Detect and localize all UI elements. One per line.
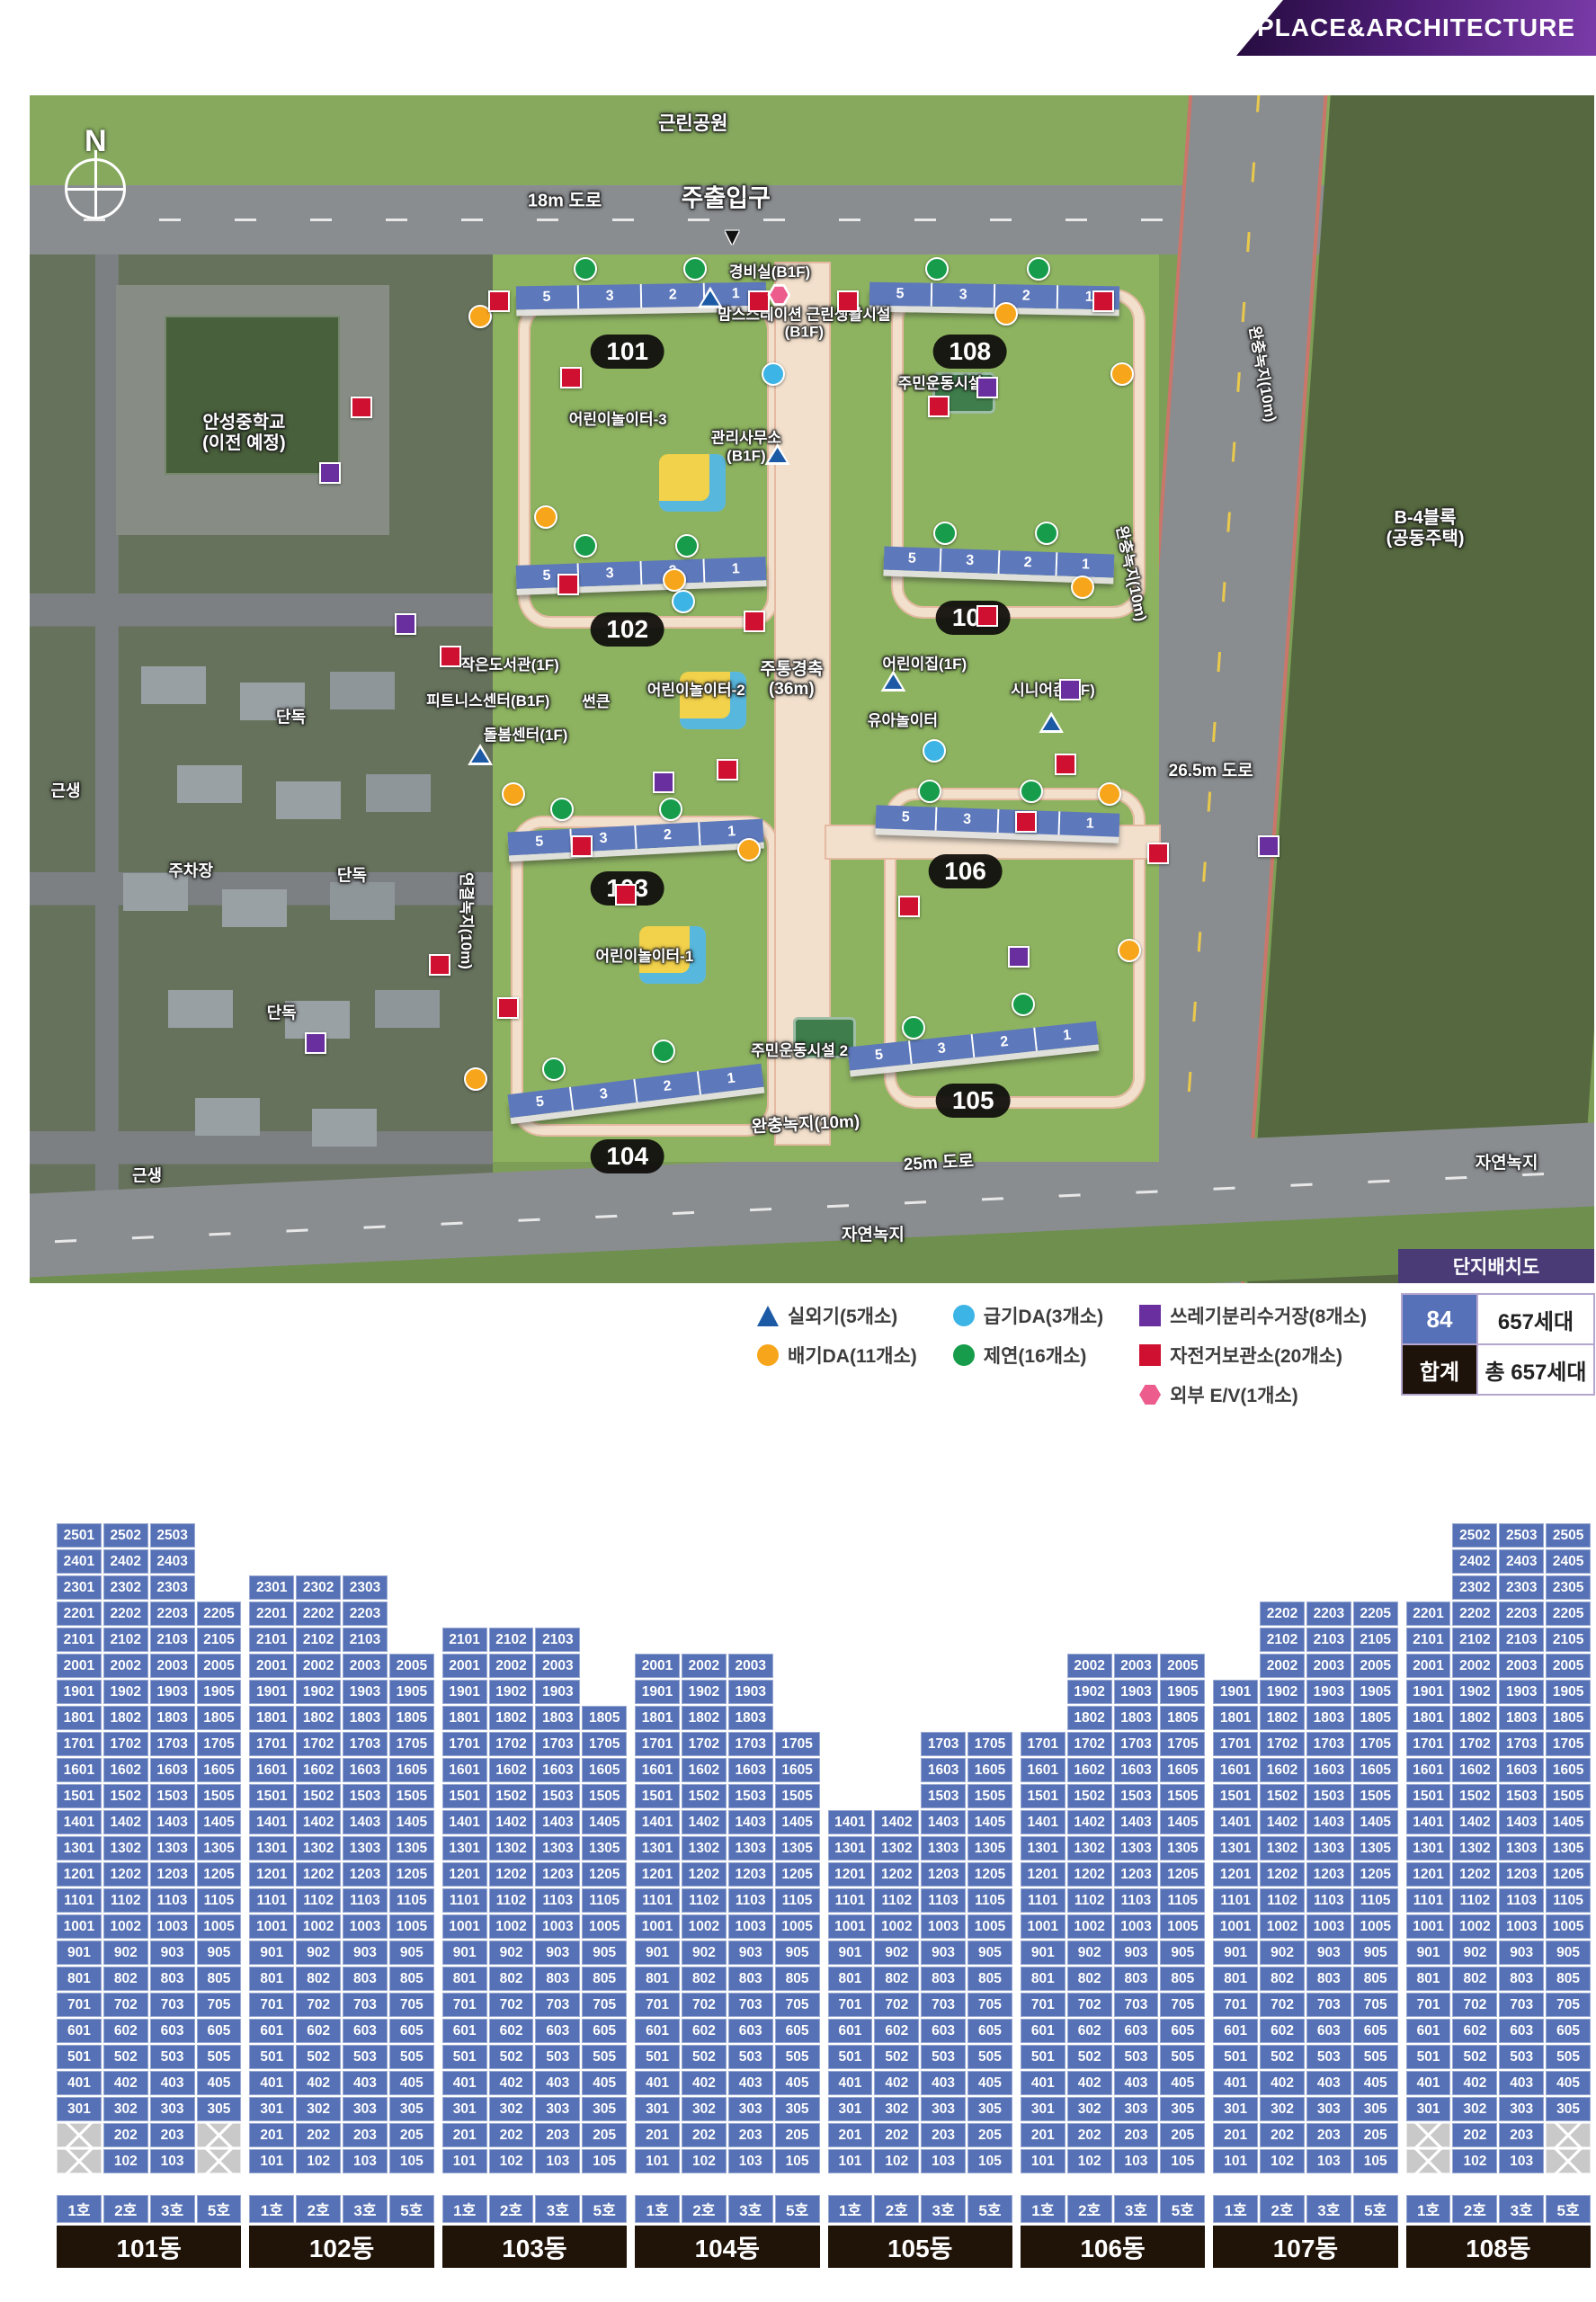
unit-column-header: 1호2호3호5호	[442, 2195, 627, 2223]
unit-cell: 1302	[874, 1836, 919, 1860]
unit-cell: 305	[1160, 2097, 1205, 2121]
unit-cell: 1905	[1546, 1680, 1591, 1704]
unit-cell: 1801	[1213, 1706, 1258, 1730]
unit-cell: 701	[1406, 1993, 1451, 2017]
unit-cell: 701	[1213, 1993, 1258, 2017]
unit-cell: 802	[874, 1967, 919, 1991]
unit-column-header: 1호2호3호5호	[1021, 2195, 1205, 2223]
unit-cell: 103	[535, 2149, 580, 2173]
unit-cell: 305	[582, 2097, 627, 2121]
blocked-cell	[1406, 2149, 1451, 2173]
unit-cell: 2203	[150, 1602, 195, 1626]
compass-dial	[65, 158, 126, 219]
unit-cell: 605	[582, 2019, 627, 2043]
unit-cell: 603	[1306, 2019, 1351, 2043]
unit-cell: 601	[57, 2019, 102, 2043]
bicycle-storage-marker	[557, 574, 579, 595]
unit-cell: 502	[874, 2045, 919, 2069]
unit-cell: 505	[1546, 2045, 1591, 2069]
map-building-101-unit-5: 5	[516, 285, 580, 309]
unit-cell: 703	[1114, 1993, 1159, 2017]
map-building-108-unit-3: 3	[932, 283, 996, 308]
unit-cell: 1301	[828, 1836, 873, 1860]
legend-item-label: 자전거보관소(20개소)	[1170, 1342, 1342, 1369]
unit-cell: 2003	[150, 1654, 195, 1678]
unit-cell: 102	[489, 2149, 534, 2173]
unit-cell: 403	[1499, 2071, 1544, 2095]
unit-cell: 105	[582, 2149, 627, 2173]
unit-cell: 301	[828, 2097, 873, 2121]
unit-cell: 1205	[1353, 1862, 1398, 1887]
unit-cell: 2101	[57, 1628, 102, 1652]
unit-cell: 1001	[1213, 1914, 1258, 1939]
unit-cell: 2203	[1306, 1602, 1351, 1626]
unit-cell: 2103	[343, 1628, 388, 1652]
map-building-107-unit-2: 2	[999, 550, 1057, 575]
unit-cell: 1405	[197, 1810, 242, 1834]
unit-cell: 1401	[249, 1810, 294, 1834]
unit-cell: 1805	[1353, 1706, 1398, 1730]
main-entry-arrow-icon: ▼	[720, 223, 744, 251]
unit-cell: 902	[103, 1941, 148, 1965]
total-label-cell: 합계	[1402, 1344, 1477, 1395]
unit-cell: 1303	[535, 1836, 580, 1860]
unit-cell: 405	[197, 2071, 242, 2095]
unit-cell: 805	[1160, 1967, 1205, 1991]
unit-cell: 2201	[57, 1602, 102, 1626]
unit-cell: 1903	[728, 1680, 773, 1704]
unit-cell: 601	[249, 2019, 294, 2043]
unit-cell: 2502	[103, 1523, 148, 1548]
unit-cell: 2001	[442, 1654, 487, 1678]
unit-cell: 501	[249, 2045, 294, 2069]
unit-cell: 805	[197, 1967, 242, 1991]
smoke-control-marker	[918, 780, 941, 803]
bicycle-storage-marker	[429, 954, 450, 976]
unit-cell: 1201	[1406, 1862, 1451, 1887]
compass: N	[64, 126, 127, 219]
map-label: 어린이집(1F)	[882, 656, 967, 674]
unit-cell: 503	[150, 2045, 195, 2069]
building-name-bar: 105동	[828, 2226, 1012, 2268]
unit-cell: 401	[57, 2071, 102, 2095]
unit-cell: 303	[1499, 2097, 1544, 2121]
unit-cell: 2202	[1452, 1602, 1497, 1626]
unit-cell: 2002	[1452, 1654, 1497, 1678]
unit-cell: 1102	[682, 1888, 727, 1913]
unit-cell: 1903	[343, 1680, 388, 1704]
grid-building-108동: 3014015016017018019011001110112011301140…	[1406, 1523, 1591, 2268]
unit-column-header-cell: 3호	[1499, 2195, 1544, 2223]
map-label: 연결녹지(10m)	[458, 872, 476, 969]
unit-cell: 401	[635, 2071, 680, 2095]
unit-cell: 405	[967, 2071, 1012, 2095]
unit-cell: 1901	[57, 1680, 102, 1704]
unit-cell: 1603	[1306, 1758, 1351, 1782]
unit-cell: 1401	[442, 1810, 487, 1834]
unit-cell: 1302	[296, 1836, 341, 1860]
unit-cell: 1205	[967, 1862, 1012, 1887]
unit-cell: 903	[921, 1941, 966, 1965]
map-label: 경비실(B1F)	[729, 263, 810, 281]
unit-cell: 1601	[635, 1758, 680, 1782]
unit-cell: 805	[1353, 1967, 1398, 1991]
unit-cell: 2103	[150, 1628, 195, 1652]
unit-column-header: 1호2호3호5호	[1406, 2195, 1591, 2223]
bicycle-storage-marker	[837, 290, 859, 312]
unit-cell: 201	[635, 2123, 680, 2147]
unit-cell: 202	[296, 2123, 341, 2147]
map-label: 썬큰	[582, 693, 610, 711]
unit-cell: 301	[1406, 2097, 1451, 2121]
unit-cell: 2002	[103, 1654, 148, 1678]
unit-cell: 1803	[1306, 1706, 1351, 1730]
map-label: 근생	[50, 782, 80, 801]
unit-cell: 1405	[1353, 1810, 1398, 1834]
unit-cell: 1202	[103, 1862, 148, 1887]
map-building-103-unit-2: 2	[637, 823, 702, 850]
unit-number-grid: 3014015016017018019011001110112011301140…	[57, 1523, 1591, 2268]
unit-cell: 901	[828, 1941, 873, 1965]
unit-cell: 1703	[1306, 1732, 1351, 1756]
unit-cell: 1401	[1406, 1810, 1451, 1834]
unit-cell: 1003	[150, 1914, 195, 1939]
unit-cell: 1403	[1114, 1810, 1159, 1834]
unit-cell: 1001	[1021, 1914, 1065, 1939]
unit-cell: 1101	[57, 1888, 102, 1913]
waste-station-marker	[305, 1032, 326, 1054]
unit-cell: 1602	[682, 1758, 727, 1782]
unit-cell: 201	[1213, 2123, 1258, 2147]
unit-cell: 1003	[535, 1914, 580, 1939]
unit-cell: 2102	[1452, 1628, 1497, 1652]
unit-column-header-cell: 3호	[921, 2195, 966, 2223]
unit-cell: 502	[103, 2045, 148, 2069]
exhaust-da-marker	[502, 782, 525, 806]
unit-cell: 1505	[389, 1784, 434, 1808]
unit-cell: 2102	[103, 1628, 148, 1652]
unit-cell: 705	[389, 1993, 434, 2017]
unit-cell: 1402	[1260, 1810, 1305, 1834]
unit-cell: 505	[1353, 2045, 1398, 2069]
unit-cell: 1301	[442, 1836, 487, 1860]
unit-cell: 1002	[682, 1914, 727, 1939]
unit-cell: 2003	[728, 1654, 773, 1678]
unit-cell: 205	[389, 2123, 434, 2147]
unit-cell: 1705	[582, 1732, 627, 1756]
unit-cell: 401	[249, 2071, 294, 2095]
unit-cell: 402	[103, 2071, 148, 2095]
unit-cell: 603	[150, 2019, 195, 2043]
unit-cell: 802	[489, 1967, 534, 1991]
unit-cell: 1202	[682, 1862, 727, 1887]
unit-cell: 1105	[1160, 1888, 1205, 1913]
unit-cell: 902	[1452, 1941, 1497, 1965]
unit-cell: 403	[150, 2071, 195, 2095]
unit-cell: 1405	[967, 1810, 1012, 1834]
unit-cell: 1503	[343, 1784, 388, 1808]
unit-cell: 1605	[197, 1758, 242, 1782]
header-banner: PLACE&ARCHITECTURE	[1236, 0, 1596, 56]
unit-cell: 1203	[921, 1862, 966, 1887]
exhaust-da-marker	[534, 505, 557, 529]
unit-column-header-cell: 3호	[535, 2195, 580, 2223]
unit-cell: 503	[1114, 2045, 1159, 2069]
map-building-107-unit-3: 3	[941, 549, 1000, 574]
unit-cell: 2103	[1306, 1628, 1351, 1652]
unit-cell: 1903	[1114, 1680, 1159, 1704]
unit-cell: 701	[442, 1993, 487, 2017]
unit-cell: 703	[921, 1993, 966, 2017]
map-label: 유아놀이터	[868, 712, 938, 730]
unit-cell: 1102	[1260, 1888, 1305, 1913]
map-label: 근린공원	[658, 113, 727, 135]
square-legend-icon	[1139, 1305, 1161, 1326]
unit-cell: 1605	[775, 1758, 820, 1782]
unit-cell: 901	[442, 1941, 487, 1965]
unit-cell: 1505	[967, 1784, 1012, 1808]
unit-stack: 1012013014015016017018019011001110112011…	[1021, 1523, 1205, 2173]
unit-cell: 505	[389, 2045, 434, 2069]
unit-cell: 2301	[249, 1575, 294, 1600]
map-building-107-unit-5: 5	[884, 546, 942, 571]
unit-cell: 1103	[1114, 1888, 1159, 1913]
unit-cell: 2005	[1546, 1654, 1591, 1678]
unit-type-count: 657세대	[1477, 1294, 1594, 1344]
map-label: 어린이놀이터-2	[647, 682, 745, 700]
unit-cell: 402	[1067, 2071, 1112, 2095]
unit-cell: 605	[1353, 2019, 1398, 2043]
unit-cell: 2302	[296, 1575, 341, 1600]
unit-cell: 1505	[582, 1784, 627, 1808]
unit-cell: 1505	[775, 1784, 820, 1808]
unit-cell: 1703	[535, 1732, 580, 1756]
unit-cell: 1005	[1160, 1914, 1205, 1939]
unit-cell: 1202	[874, 1862, 919, 1887]
unit-cell: 1802	[682, 1706, 727, 1730]
unit-cell: 2402	[1452, 1549, 1497, 1574]
unit-cell: 602	[103, 2019, 148, 2043]
unit-cell: 402	[489, 2071, 534, 2095]
unit-column-header-cell: 3호	[343, 2195, 388, 2223]
unit-cell: 1202	[1067, 1862, 1112, 1887]
bicycle-storage-marker	[748, 290, 770, 312]
unit-cell: 203	[150, 2123, 195, 2147]
unit-cell: 1805	[197, 1706, 242, 1730]
legend-item: 쓰레기분리수거장(8개소)	[1139, 1302, 1367, 1329]
unit-cell: 2102	[1260, 1628, 1305, 1652]
unit-cell: 1103	[1306, 1888, 1351, 1913]
unit-cell: 1102	[296, 1888, 341, 1913]
unit-cell: 401	[1406, 2071, 1451, 2095]
unit-cell: 103	[921, 2149, 966, 2173]
unit-cell: 2503	[1499, 1523, 1544, 1548]
waste-station-marker	[395, 613, 416, 635]
unit-cell: 2102	[296, 1628, 341, 1652]
map-building-label-107: 107	[936, 601, 1011, 635]
blocked-cell	[1546, 2149, 1591, 2173]
unit-cell: 2202	[1260, 1602, 1305, 1626]
map-building-108: 5321	[869, 282, 1120, 310]
bicycle-storage-marker	[440, 646, 461, 667]
map-label: 근생	[132, 1167, 162, 1186]
unit-cell: 1503	[921, 1784, 966, 1808]
unit-cell: 103	[150, 2149, 195, 2173]
unit-cell: 1402	[296, 1810, 341, 1834]
unit-cell: 501	[828, 2045, 873, 2069]
unit-cell: 1702	[103, 1732, 148, 1756]
unit-cell: 1203	[535, 1862, 580, 1887]
unit-cell: 1605	[389, 1758, 434, 1782]
unit-cell: 102	[682, 2149, 727, 2173]
unit-cell: 1605	[1160, 1758, 1205, 1782]
unit-cell: 105	[389, 2149, 434, 2173]
unit-cell: 103	[728, 2149, 773, 2173]
unit-stack: 1012013014015016017018019011001110112011…	[1213, 1523, 1397, 2173]
unit-cell: 2103	[535, 1628, 580, 1652]
unit-column-header-cell: 2호	[1452, 2195, 1497, 2223]
unit-cell: 1802	[1067, 1706, 1112, 1730]
unit-cell: 1602	[1452, 1758, 1497, 1782]
unit-cell: 2301	[57, 1575, 102, 1600]
unit-cell: 803	[343, 1967, 388, 1991]
unit-cell: 905	[197, 1941, 242, 1965]
unit-cell: 1502	[103, 1784, 148, 1808]
unit-cell: 801	[1406, 1967, 1451, 1991]
map-building-label-105: 105	[936, 1084, 1011, 1118]
unit-cell: 1303	[921, 1836, 966, 1860]
banner-title: PLACE&ARCHITECTURE	[1257, 13, 1575, 42]
unit-cell: 1502	[1067, 1784, 1112, 1808]
legend: 실외기(5개소)배기DA(11개소)급기DA(3개소)제연(16개소)쓰레기분리…	[757, 1302, 1367, 1408]
unit-cell: 705	[582, 1993, 627, 2017]
unit-cell: 1303	[1306, 1836, 1351, 1860]
legend-column: 쓰레기분리수거장(8개소)자전거보관소(20개소)외부 E/V(1개소)	[1139, 1302, 1367, 1408]
unit-cell: 902	[874, 1941, 919, 1965]
unit-cell: 802	[1067, 1967, 1112, 1991]
map-label: 작은도서관(1F)	[460, 656, 558, 674]
unit-cell: 602	[682, 2019, 727, 2043]
unit-cell: 1501	[1406, 1784, 1451, 1808]
unit-cell: 301	[635, 2097, 680, 2121]
unit-cell: 1701	[635, 1732, 680, 1756]
unit-cell: 1105	[1353, 1888, 1398, 1913]
map-building-102-unit-3: 3	[579, 561, 643, 586]
map-label: 단독	[337, 867, 367, 886]
unit-cell: 605	[197, 2019, 242, 2043]
unit-cell: 1205	[197, 1862, 242, 1887]
unit-cell: 1205	[1546, 1862, 1591, 1887]
map-building-101-unit-3: 3	[579, 284, 643, 308]
unit-cell: 2002	[296, 1654, 341, 1678]
smoke-control-marker	[902, 1016, 925, 1039]
unit-cell: 1705	[775, 1732, 820, 1756]
unit-cell: 1101	[249, 1888, 294, 1913]
unit-cell: 1101	[442, 1888, 487, 1913]
map-building-label-108: 108	[932, 335, 1007, 369]
unit-cell: 202	[1067, 2123, 1112, 2147]
unit-cell: 801	[635, 1967, 680, 1991]
unit-cell: 203	[1114, 2123, 1159, 2147]
unit-cell: 802	[682, 1967, 727, 1991]
unit-cell: 402	[1452, 2071, 1497, 2095]
building-name-bar: 101동	[57, 2226, 241, 2268]
unit-cell: 2105	[197, 1628, 242, 1652]
unit-column-header-cell: 3호	[150, 2195, 195, 2223]
bicycle-storage-marker	[928, 396, 950, 417]
map-label: 주차장	[168, 861, 213, 880]
unit-cell: 601	[1021, 2019, 1065, 2043]
unit-cell: 305	[967, 2097, 1012, 2121]
unit-cell: 1503	[535, 1784, 580, 1808]
site-plan-map: N ▼ 단지배치도 532110153211085321102532110753…	[30, 95, 1594, 1283]
unit-cell: 403	[535, 2071, 580, 2095]
unit-stack: 1012013014015016017018019011001110112011…	[828, 1523, 1012, 2173]
unit-cell: 702	[489, 1993, 534, 2017]
unit-cell: 2303	[150, 1575, 195, 1600]
unit-cell: 503	[1499, 2045, 1544, 2069]
unit-cell: 1401	[828, 1810, 873, 1834]
page: PLACE&ARCHITECTURE	[0, 0, 1596, 2302]
unit-cell: 1802	[296, 1706, 341, 1730]
unit-cell: 1603	[150, 1758, 195, 1782]
unit-cell: 201	[828, 2123, 873, 2147]
unit-cell: 1703	[921, 1732, 966, 1756]
smoke-control-marker	[574, 534, 597, 558]
unit-cell: 1205	[389, 1862, 434, 1887]
unit-column-header-cell: 5호	[775, 2195, 820, 2223]
waste-station-marker	[1008, 946, 1030, 968]
unit-cell: 303	[535, 2097, 580, 2121]
unit-column-header: 1호2호3호5호	[635, 2195, 819, 2223]
legend-column: 실외기(5개소)배기DA(11개소)	[757, 1302, 917, 1408]
unit-stack: 1012013014015016017018019011001110112011…	[249, 1523, 433, 2173]
unit-cell: 101	[635, 2149, 680, 2173]
unit-cell: 1602	[103, 1758, 148, 1782]
unit-cell: 1201	[1213, 1862, 1258, 1887]
unit-cell: 403	[343, 2071, 388, 2095]
unit-cell: 1302	[103, 1836, 148, 1860]
unit-cell: 1002	[296, 1914, 341, 1939]
unit-cell: 1703	[728, 1732, 773, 1756]
unit-column-header-cell: 2호	[489, 2195, 534, 2223]
unit-cell: 2005	[197, 1654, 242, 1678]
unit-cell: 1302	[1067, 1836, 1112, 1860]
unit-cell: 1101	[1406, 1888, 1451, 1913]
bicycle-storage-marker	[1015, 811, 1037, 833]
grid-building-103동: 1012013014015016017018019011001110112011…	[442, 1523, 627, 2268]
unit-cell: 1602	[489, 1758, 534, 1782]
unit-cell: 902	[1260, 1941, 1305, 1965]
bicycle-storage-marker	[1147, 843, 1169, 864]
unit-cell: 1405	[389, 1810, 434, 1834]
unit-cell: 802	[1452, 1967, 1497, 1991]
unit-cell: 303	[1114, 2097, 1159, 2121]
unit-cell: 303	[150, 2097, 195, 2121]
unit-cell: 1203	[343, 1862, 388, 1887]
unit-cell: 1505	[1546, 1784, 1591, 1808]
unit-cell: 302	[103, 2097, 148, 2121]
unit-cell: 803	[150, 1967, 195, 1991]
unit-cell: 1402	[682, 1810, 727, 1834]
unit-cell: 501	[57, 2045, 102, 2069]
circle-legend-icon	[953, 1305, 975, 1326]
unit-cell: 905	[1353, 1941, 1398, 1965]
unit-column-header-cell: 1호	[249, 2195, 294, 2223]
unit-column-header-cell: 2호	[296, 2195, 341, 2223]
map-label: 어린이놀이터-3	[569, 411, 667, 429]
unit-cell: 1502	[489, 1784, 534, 1808]
